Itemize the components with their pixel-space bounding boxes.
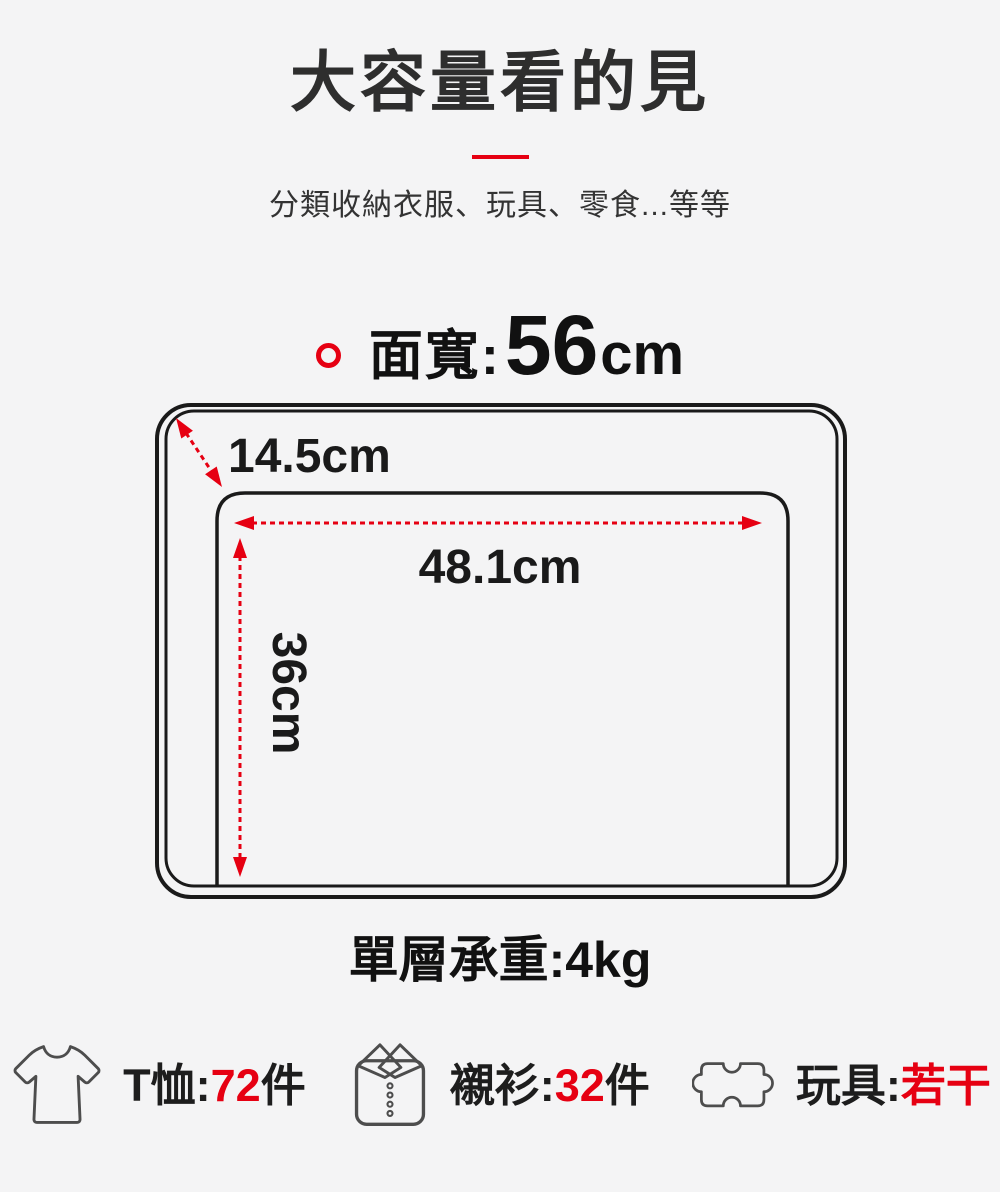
capacity-text-shirt: 襯衫:32件 (450, 1063, 650, 1108)
page-title: 大容量看的見 (0, 0, 1000, 119)
capacity-item-shirt: 襯衫:32件 (348, 1039, 650, 1131)
polo-shirt-icon (348, 1039, 432, 1131)
page-subtitle: 分類收納衣服、玩具、零食...等等 (0, 189, 1000, 224)
capacity-value: 72 (211, 1060, 261, 1111)
capacity-text-toys: 玩具:若干 (796, 1063, 991, 1108)
capacity-label: 玩具: (796, 1060, 901, 1111)
capacity-label: 襯衫: (450, 1060, 555, 1111)
tshirt-icon (9, 1037, 105, 1133)
capacity-label: T恤: (123, 1060, 210, 1111)
depth-arrow (186, 433, 212, 472)
dimension-diagram: 14.5cm 48.1cm 36cm (0, 393, 1000, 913)
capacity-value: 32 (555, 1060, 605, 1111)
capacity-suffix: 件 (261, 1060, 306, 1111)
capacity-suffix: 件 (605, 1060, 650, 1111)
bullet-ring-icon (316, 343, 341, 368)
spec-value: 56 (505, 303, 598, 387)
depth-label: 14.5cm (228, 430, 391, 483)
capacity-item-tshirt: T恤:72件 (9, 1037, 306, 1133)
title-divider (472, 155, 529, 159)
load-capacity-line: 單層承重:4kg (0, 935, 1000, 985)
capacity-text-tshirt: T恤:72件 (123, 1063, 306, 1108)
width-label: 48.1cm (419, 541, 582, 594)
capacity-item-toys: 玩具:若干 (692, 1054, 991, 1117)
load-value: 4kg (565, 932, 651, 988)
spec-label: 面寬: (369, 329, 501, 383)
load-label: 單層承重: (349, 932, 566, 988)
capacity-value: 若干 (901, 1060, 991, 1111)
height-label: 36cm (262, 632, 315, 755)
capacity-row: T恤:72件 襯衫:32件 玩具:若干 (0, 1037, 1000, 1133)
face-width-spec: 面寬: 56 cm (0, 303, 1000, 387)
spec-unit: cm (600, 326, 684, 384)
puzzle-icon (692, 1054, 778, 1117)
infographic-page: 大容量看的見 分類收納衣服、玩具、零食...等等 面寬: 56 cm 14.5c… (0, 0, 1000, 1192)
